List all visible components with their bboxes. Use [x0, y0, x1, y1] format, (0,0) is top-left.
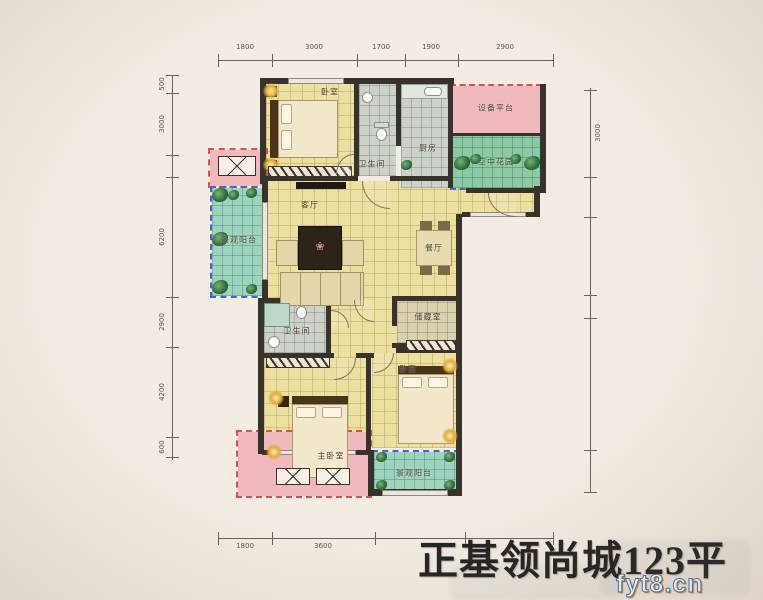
wall [397, 296, 460, 301]
tick [272, 532, 273, 545]
tick [166, 155, 179, 156]
tick [584, 492, 597, 493]
lamp-glow [442, 358, 458, 374]
tick [375, 532, 376, 545]
dim-label: 3000 [594, 124, 602, 142]
window [470, 212, 526, 217]
dim-label: 3000 [305, 43, 323, 51]
dim-label: 1800 [236, 542, 254, 550]
sofa [280, 272, 364, 306]
wall [540, 84, 546, 188]
dining-chair [438, 266, 450, 275]
ruler-top [218, 60, 553, 61]
bed-headboard [292, 396, 348, 404]
dim-label: 3000 [158, 115, 166, 133]
dim-label: 500 [158, 77, 166, 90]
room-label-kitchen: 厨房 [419, 143, 437, 154]
dining-chair [420, 266, 432, 275]
tv-console [296, 182, 346, 189]
pillow [428, 377, 448, 388]
tick [166, 347, 179, 348]
armchair [276, 240, 298, 266]
lamp-glow [442, 428, 458, 444]
room-label-storage: 储藏室 [415, 312, 442, 323]
area-rug: ❀ [298, 226, 342, 270]
dim-label: 600 [158, 440, 166, 453]
dim-label: 3600 [314, 542, 332, 550]
washbasin [362, 92, 373, 103]
room-label-master-bedroom: 主卧室 [318, 451, 345, 462]
wall [366, 353, 371, 453]
wardrobe [266, 357, 330, 368]
tick [218, 532, 219, 545]
tick [166, 457, 179, 458]
room-label-sky-garden: 空中花园 [478, 157, 514, 168]
dim-label: 2900 [158, 313, 166, 331]
room-label-balcony-left: 景观阳台 [221, 235, 257, 246]
dim-label: 4200 [158, 383, 166, 401]
room-label-bedroom-top: 卧室 [321, 87, 339, 98]
room-label-living: 客厅 [301, 200, 319, 211]
room-label-bath-mid: 卫生间 [284, 326, 311, 337]
wall [392, 296, 397, 326]
pillow [296, 407, 316, 418]
dim-label: 1900 [422, 43, 440, 51]
washbasin [268, 336, 280, 348]
site-watermark: fyt8.cn [616, 570, 704, 599]
ruler-left [172, 75, 173, 460]
ac-unit-box [276, 468, 310, 485]
tick [584, 450, 597, 451]
ruler-right [590, 88, 591, 492]
tick [584, 295, 597, 296]
toilet [376, 128, 387, 141]
tick [218, 54, 219, 67]
room-label-bedroom-bottom: 卧室 [399, 364, 417, 375]
window [288, 78, 344, 84]
wardrobe [406, 340, 456, 351]
tick [166, 75, 179, 76]
wall [390, 176, 450, 181]
wall [450, 133, 542, 136]
tick [357, 54, 358, 67]
tick [584, 90, 597, 91]
wall [258, 358, 264, 454]
tick [272, 54, 273, 67]
tick [553, 54, 554, 67]
lamp-glow [263, 83, 279, 99]
tick [166, 297, 179, 298]
wall [356, 353, 374, 358]
dim-label: 1700 [372, 43, 390, 51]
room-label-balcony-bottom: 景观阳台 [396, 468, 432, 479]
room-label-dining: 餐厅 [425, 243, 443, 254]
ac-unit-box [316, 468, 350, 485]
pillow [281, 104, 292, 124]
kitchen-sink [424, 87, 442, 96]
kitchen-floor [401, 84, 448, 188]
toilet [296, 306, 307, 319]
bed-headboard [270, 100, 278, 158]
window [382, 490, 448, 496]
dining-chair [438, 221, 450, 230]
tick [405, 54, 406, 67]
room-label-equipment-platform: 设备平台 [478, 103, 514, 114]
pillow [322, 407, 342, 418]
pillow [281, 130, 292, 150]
tick [584, 177, 597, 178]
dim-label: 6200 [158, 228, 166, 246]
wall [448, 84, 453, 188]
tick [458, 54, 459, 67]
window [262, 202, 268, 280]
tick [166, 93, 179, 94]
dim-label: 1800 [236, 43, 254, 51]
tick [166, 437, 179, 438]
pillow [402, 377, 422, 388]
wall [456, 214, 462, 358]
dim-label: 2900 [496, 43, 514, 51]
ac-unit-box [218, 156, 256, 176]
room-label-bath-top: 卫生间 [359, 159, 386, 170]
armchair [342, 240, 364, 266]
lamp-glow [266, 444, 282, 460]
tick [584, 217, 597, 218]
lamp-glow [268, 390, 284, 406]
dining-chair [420, 221, 432, 230]
floorplan-image: ❀ [0, 0, 763, 600]
shower [264, 303, 290, 327]
tick [584, 318, 597, 319]
tick [166, 177, 179, 178]
